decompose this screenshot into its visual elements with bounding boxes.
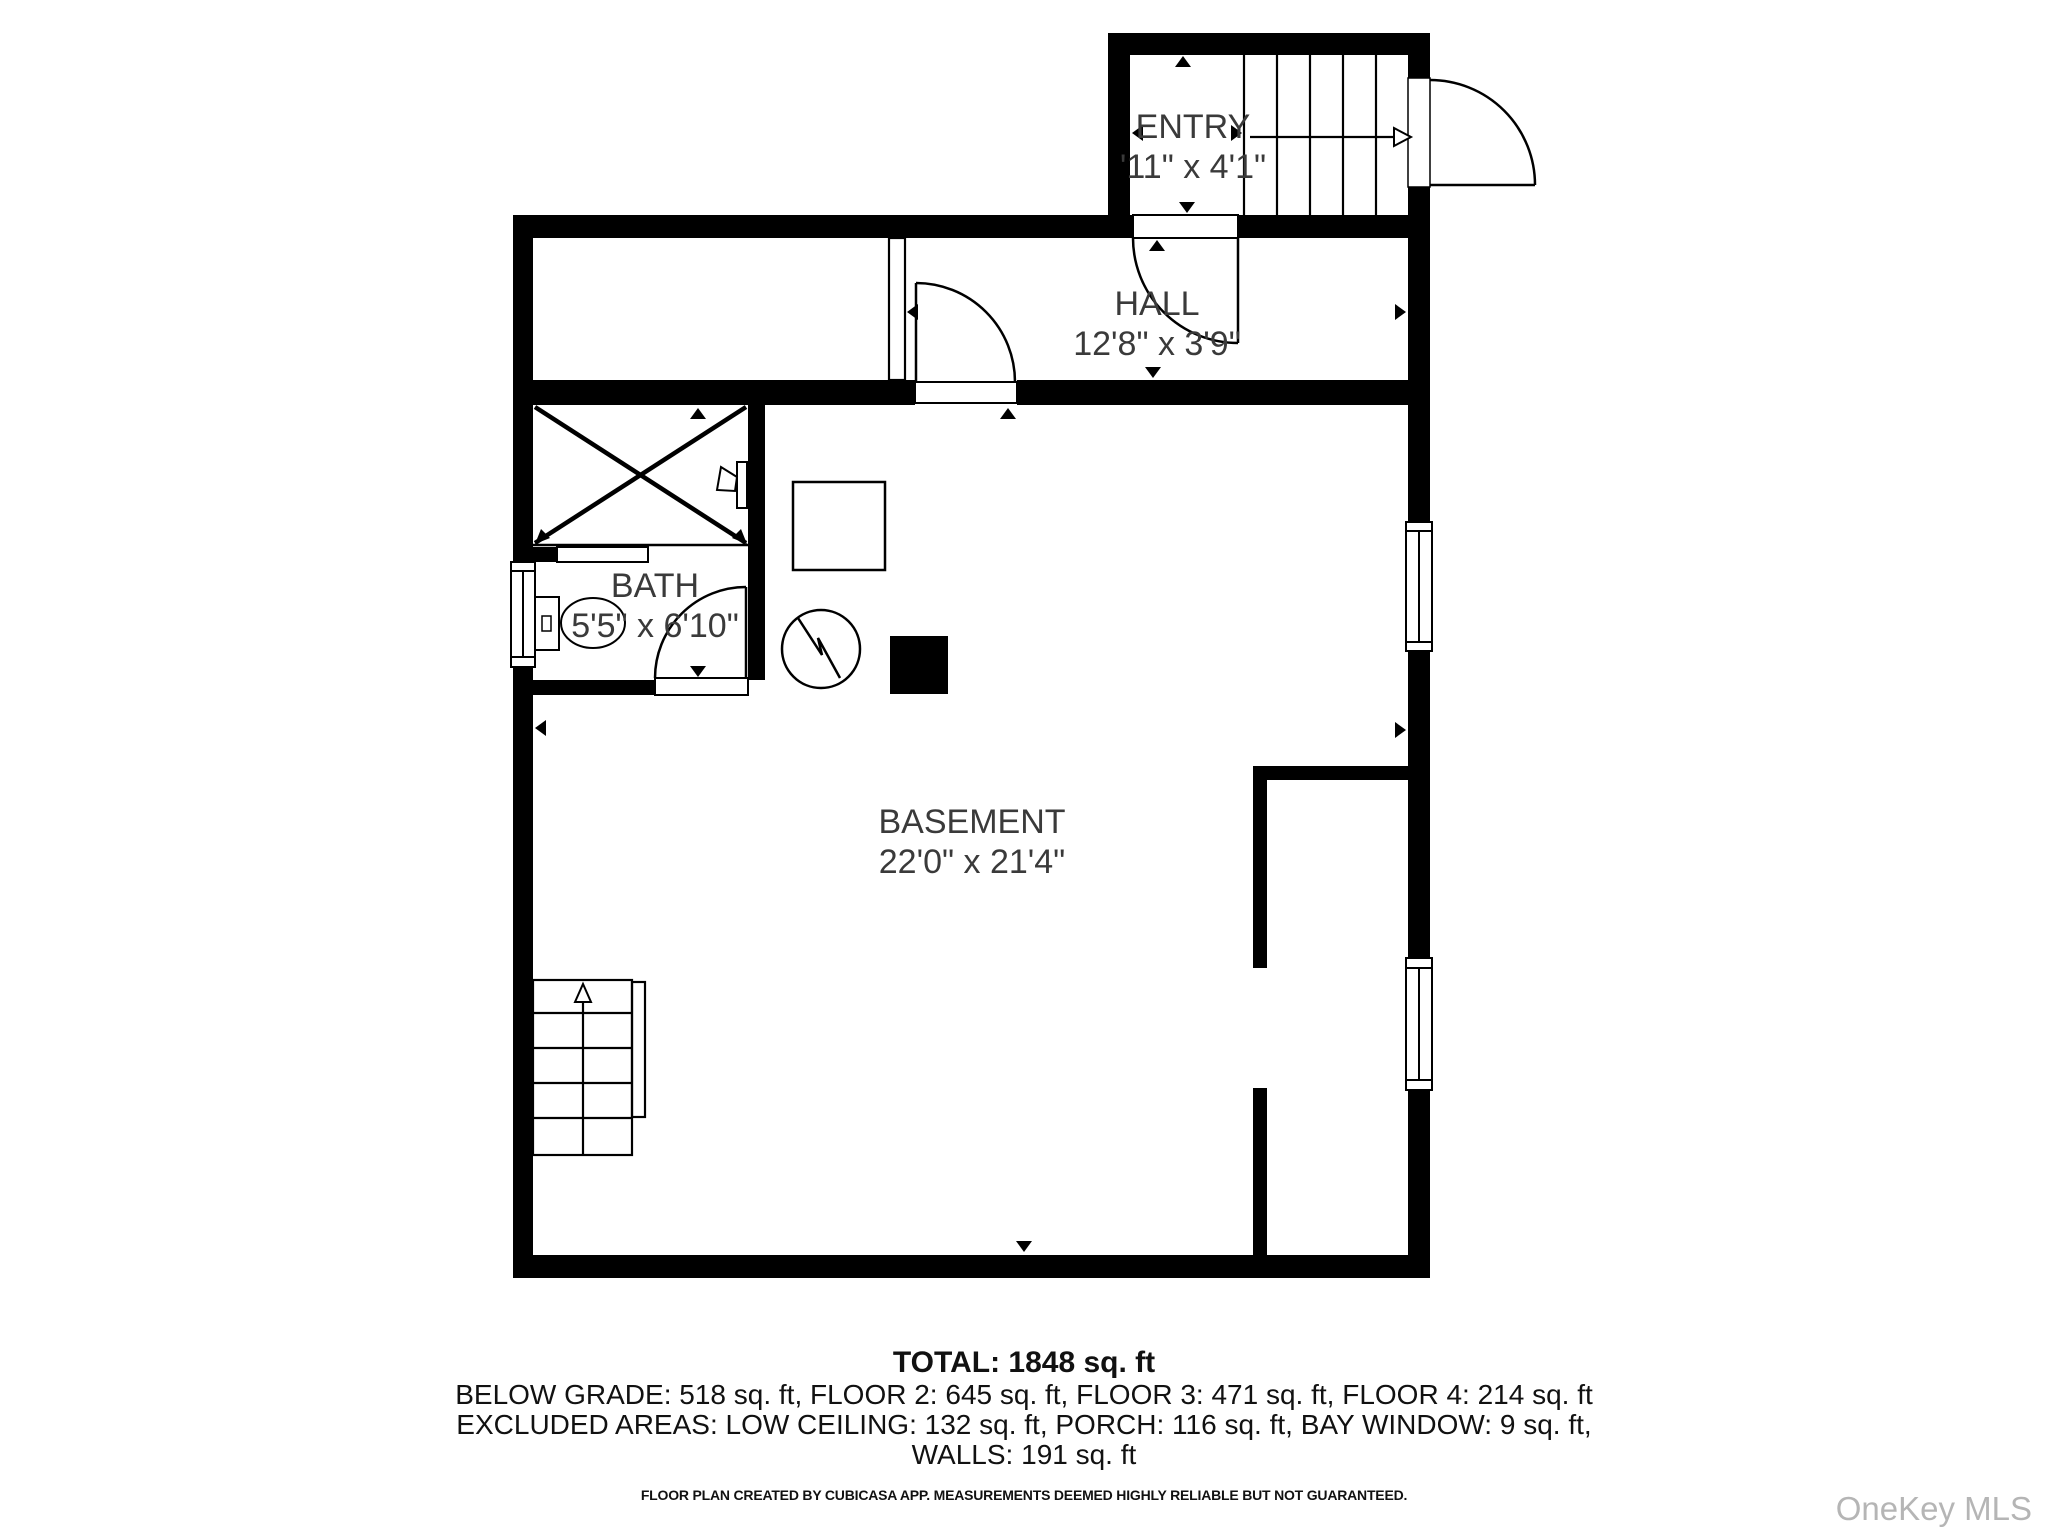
- opening-hall-basement: [915, 382, 1017, 403]
- area-summary: TOTAL: 1848 sq. ft BELOW GRADE: 518 sq. …: [0, 1346, 2048, 1470]
- room-label-basement: BASEMENT 22'0" x 21'4": [878, 802, 1065, 882]
- floor-areas-line: BELOW GRADE: 518 sq. ft, FLOOR 2: 645 sq…: [0, 1380, 2048, 1410]
- room-name: BASEMENT: [878, 802, 1065, 842]
- floor-plan-drawing: [0, 0, 2048, 1536]
- wall-partition-hall: [889, 238, 905, 380]
- marker-basement-down: [1016, 1241, 1032, 1252]
- shower-head-icon: [717, 462, 747, 508]
- wall-left-upper: [513, 238, 533, 562]
- room-dimensions: '11" x 4'1": [1120, 147, 1266, 187]
- room-name: ENTRY: [1120, 107, 1266, 147]
- furnace-icon: [793, 482, 885, 570]
- opening-entry-hall: [1133, 215, 1238, 238]
- staircase-entry: [1244, 55, 1411, 215]
- wall-right-3: [1408, 1090, 1430, 1255]
- wall-hall-bottom-right: [1017, 380, 1430, 405]
- wall-bath-bottom: [533, 680, 655, 695]
- marker-hall-up: [1149, 240, 1165, 251]
- stair-up-arrow-head: [575, 984, 591, 1002]
- marker-basement-up: [1000, 408, 1016, 419]
- wall-right-2: [1408, 651, 1430, 958]
- total-area-line: TOTAL: 1848 sq. ft: [0, 1346, 2048, 1380]
- marker-hall-left: [907, 304, 918, 320]
- shower-threshold: [557, 547, 648, 562]
- wall-shower-stub: [533, 547, 557, 562]
- marker-hall-right: [1395, 304, 1406, 320]
- marker-basement-right: [1395, 722, 1406, 738]
- wall-bath-right: [748, 405, 765, 680]
- opening-entry-exterior: [1408, 78, 1430, 187]
- wall-hall-top: [513, 215, 1133, 238]
- window-bath-left: [511, 562, 535, 667]
- wall-entry-top: [1108, 33, 1430, 55]
- room-name: HALL: [1073, 284, 1241, 324]
- wall-closet-vertical-upper: [1253, 780, 1267, 968]
- wall-hall-top-right: [1238, 215, 1430, 238]
- watermark-onekey-mls: OneKey MLS: [1836, 1490, 2032, 1528]
- utility-box-icon: [890, 636, 948, 694]
- window-right-lower: [1406, 958, 1432, 1090]
- marker-basement-left: [535, 720, 546, 736]
- room-dimensions: 22'0" x 21'4": [878, 842, 1065, 882]
- wall-right-1: [1408, 238, 1430, 522]
- doors: [655, 80, 1535, 678]
- opening-bath: [655, 678, 748, 695]
- room-label-bath: BATH 5'5" x 6'10": [571, 566, 739, 646]
- marker-entry-up: [1175, 56, 1191, 67]
- walls: [513, 33, 1430, 1278]
- wall-hall-bottom-left: [533, 380, 915, 405]
- staircase-basement: [533, 980, 645, 1155]
- wall-closet-vertical-lower: [1253, 1088, 1267, 1255]
- room-label-entry: ENTRY '11" x 4'1": [1120, 107, 1266, 187]
- disclaimer-text: FLOOR PLAN CREATED BY CUBICASA APP. MEAS…: [0, 1487, 2048, 1503]
- room-name: BATH: [571, 566, 739, 606]
- window-right-upper: [1406, 522, 1432, 651]
- wall-closet-top: [1253, 766, 1408, 780]
- room-dimensions: 5'5" x 6'10": [571, 606, 739, 646]
- excluded-areas-line: EXCLUDED AREAS: LOW CEILING: 132 sq. ft,…: [0, 1410, 2048, 1440]
- room-dimensions: 12'8" x 3'9": [1073, 324, 1241, 364]
- floor-plan-page: ENTRY '11" x 4'1" HALL 12'8" x 3'9" BATH…: [0, 0, 2048, 1536]
- shower: [533, 407, 748, 562]
- wall-bottom: [513, 1255, 1430, 1278]
- marker-shower-up: [690, 408, 706, 419]
- marker-bath-down: [690, 666, 706, 677]
- stair-handrail: [632, 982, 645, 1117]
- marker-hall-down: [1145, 367, 1161, 378]
- door-entry-exterior: [1430, 80, 1535, 185]
- wall-left-lower: [513, 667, 533, 1255]
- marker-entry-down: [1179, 202, 1195, 213]
- wall-entry-right-upper: [1408, 55, 1430, 80]
- walls-area-line: WALLS: 191 sq. ft: [0, 1440, 2048, 1470]
- water-heater-icon: [782, 610, 860, 688]
- door-hall-to-basement: [916, 283, 1015, 382]
- room-label-hall: HALL 12'8" x 3'9": [1073, 284, 1241, 364]
